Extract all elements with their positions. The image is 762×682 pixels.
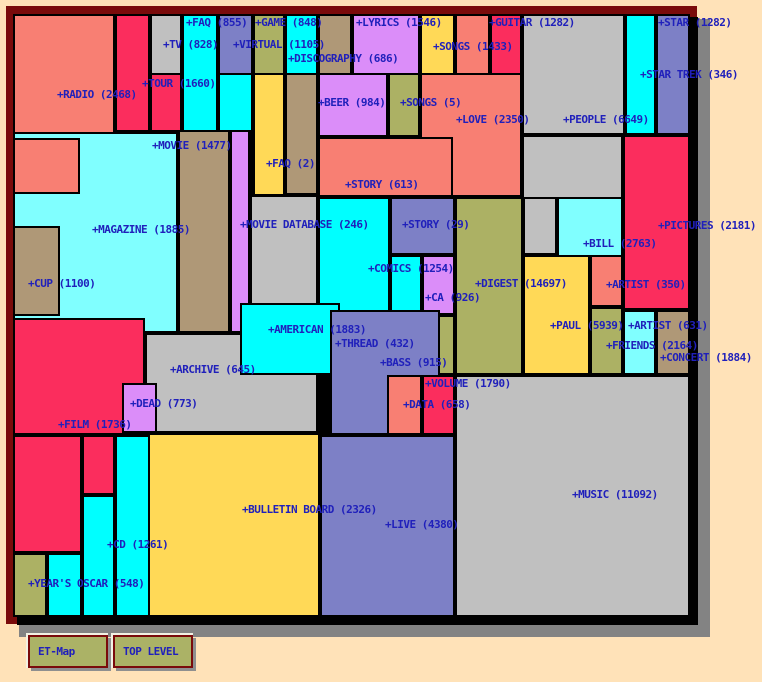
tile-dead[interactable] [122, 383, 157, 433]
tile-music[interactable] [455, 375, 690, 617]
tile-live[interactable] [320, 435, 455, 617]
tile-guitar[interactable] [490, 14, 522, 75]
tile-discography[interactable] [285, 73, 318, 195]
tile-cup[interactable] [13, 226, 60, 316]
tile-cd-step[interactable] [82, 495, 115, 617]
tile-people[interactable] [522, 14, 625, 135]
tile-artist-350[interactable] [590, 255, 623, 307]
tile-paul[interactable] [523, 255, 590, 375]
tile-songs-5[interactable] [388, 73, 420, 137]
tile-beer[interactable] [318, 73, 388, 137]
tile-movie[interactable] [178, 130, 230, 333]
tile-tour[interactable] [115, 14, 150, 132]
tile-songs-1433[interactable] [420, 14, 455, 75]
tile-comics[interactable] [318, 197, 390, 315]
tile-cd-step2[interactable] [47, 553, 82, 617]
tile-people-tongue[interactable] [523, 197, 557, 255]
tile-story-613[interactable] [318, 137, 453, 197]
tile-virtual[interactable] [218, 14, 253, 75]
tile-data[interactable] [387, 375, 422, 435]
tile-star[interactable] [656, 14, 690, 135]
tile-radio-lower[interactable] [13, 138, 80, 194]
tile-virtual-lower[interactable] [218, 73, 253, 132]
tile-ca[interactable] [422, 255, 455, 315]
tile-people-cyan-strip[interactable] [625, 14, 656, 135]
tile-digest[interactable] [455, 197, 523, 375]
tile-discography-top[interactable] [318, 14, 352, 75]
tile-story-29[interactable] [390, 197, 455, 255]
tile-radio[interactable] [13, 14, 115, 140]
tile-tv[interactable] [150, 14, 182, 75]
tile-comics-ext[interactable] [390, 255, 422, 315]
tile-concert[interactable] [656, 310, 690, 375]
tile-film-lower[interactable] [13, 435, 82, 553]
tile-bulletin-board[interactable] [145, 433, 320, 617]
top-level-button[interactable]: TOP LEVEL [113, 635, 193, 668]
tile-artist-631[interactable] [590, 307, 623, 375]
et-map-button[interactable]: ET-Map [28, 635, 108, 668]
tile-pictures[interactable] [623, 135, 690, 310]
tile-film-step[interactable] [82, 435, 115, 495]
tile-game[interactable] [253, 14, 285, 75]
tile-songs-right[interactable] [455, 14, 490, 75]
tile-cd[interactable] [115, 435, 150, 617]
tile-faq-855[interactable] [182, 14, 218, 132]
tile-volume[interactable] [422, 375, 455, 435]
et-map-page: +FAQ (855)+GAME (848)+LYRICS (1546)+GUIT… [0, 0, 762, 682]
tile-tour-right[interactable] [150, 73, 182, 132]
tile-friends[interactable] [623, 310, 656, 375]
tile-lyrics[interactable] [352, 14, 420, 75]
tile-game-right[interactable] [285, 14, 318, 75]
tile-faq-2[interactable] [253, 73, 285, 196]
tile-american[interactable] [240, 303, 340, 375]
tile-years-oscar[interactable] [13, 553, 47, 617]
